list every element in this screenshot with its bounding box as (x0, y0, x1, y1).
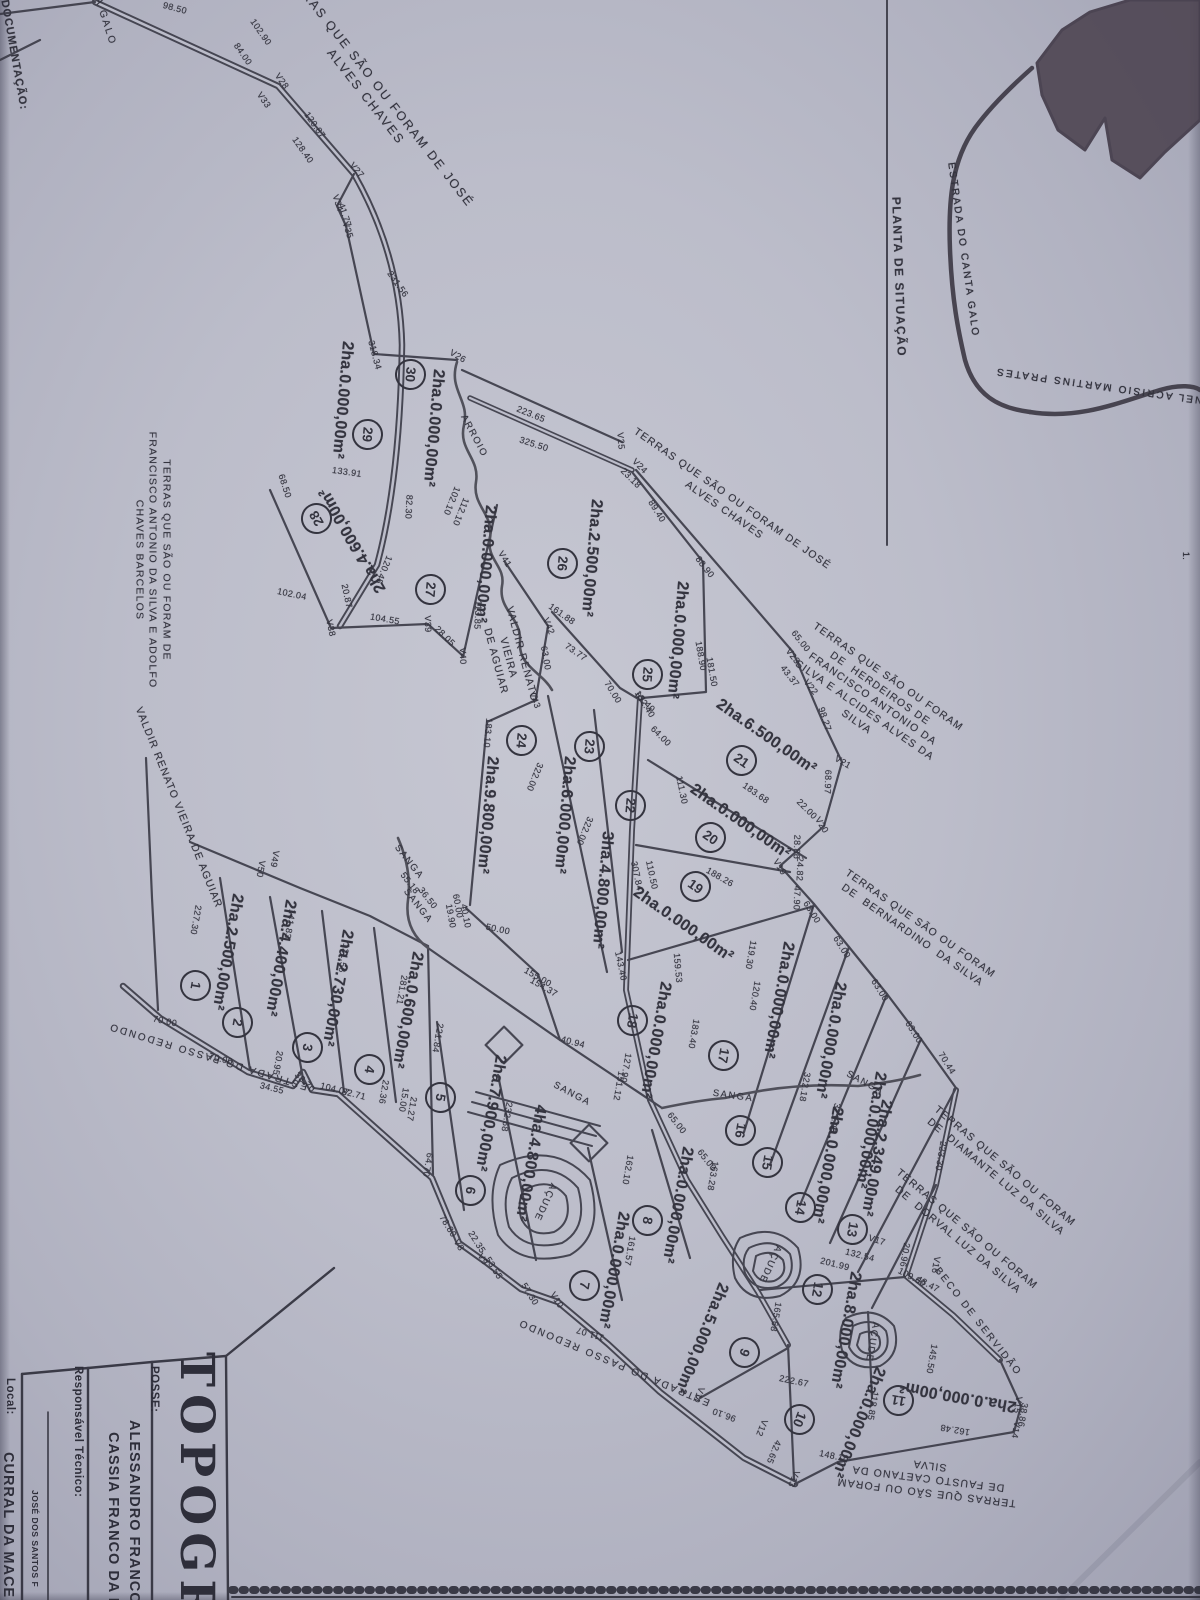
survey-mark: 50.00 (485, 922, 511, 937)
responsible-name: JOSÉ DOS SANTOS F (30, 1490, 40, 1587)
owner-label-7: TERRAS QUE SÃO OU FORAM DE FRANCISCO ANT… (132, 432, 173, 689)
survey-mark: V25 (615, 432, 626, 450)
lot-number-18: 18 (614, 1002, 650, 1038)
survey-mark: 120.87 (302, 110, 327, 140)
survey-mark: 232.68 (499, 1101, 514, 1132)
survey-mark: V49 (269, 850, 282, 869)
lot-area-24: 2ha.9.800,00m² (473, 755, 501, 874)
feature-label-3: SANGA (712, 1088, 754, 1105)
survey-mark: 63.00 (903, 1019, 924, 1045)
lot-number-15: 15 (749, 1144, 785, 1180)
lot-area-16: 2ha.0.000,00m² (811, 980, 849, 1099)
posse-name-1: ALESSANDRO FRANCO (126, 1420, 142, 1600)
survey-mark: 68.50 (276, 473, 293, 499)
survey-mark: 183.68 (741, 780, 771, 805)
lot-area-25: 2ha.0.000,00m² (663, 580, 691, 699)
survey-mark: V40 (458, 647, 469, 665)
survey-mark: 325.50 (518, 435, 550, 454)
lot-area-22: 3ha.4.800,00m² (588, 830, 616, 949)
survey-mark: 98.50 (162, 0, 188, 16)
survey-mark: 84.00 (232, 41, 254, 67)
survey-mark: 162.48 (939, 1422, 970, 1437)
survey-mark: 111.30 (674, 775, 690, 805)
survey-mark: 63.00 (801, 899, 822, 925)
survey-mark: 222.67 (778, 1373, 809, 1389)
survey-mark: 227.30 (188, 904, 203, 935)
survey-mark: 159.53 (672, 953, 685, 984)
lot-number-6: 6 (452, 1172, 488, 1208)
survey-mark: 68.97 (823, 770, 834, 795)
survey-mark: V10 (548, 1290, 566, 1310)
survey-mark: 28.05 (433, 624, 457, 648)
survey-mark: 47.90 (792, 886, 803, 911)
survey-mark: 128.40 (290, 135, 315, 165)
survey-mark: 20.95 (271, 1050, 285, 1076)
survey-mark: 145.50 (924, 1343, 939, 1374)
survey-mark: 20.87 (340, 583, 355, 609)
survey-mark: 63.00 (539, 645, 553, 671)
inset-corner-mark: 1. (1181, 552, 1191, 560)
survey-mark: V13 (786, 1469, 802, 1489)
survey-mark: 223.65 (515, 404, 547, 424)
lot-area-9: 2ha.5.000,00m² (671, 1280, 732, 1396)
lot-area-7: 2ha.0.000,00m² (594, 1210, 632, 1329)
lot-number-13: 13 (834, 1211, 870, 1247)
lot-number-30: 30 (393, 357, 427, 391)
survey-mark: V8 (452, 1237, 467, 1252)
survey-mark: 322.00 (525, 761, 545, 793)
survey-mark: 221.84 (430, 1022, 445, 1053)
lot-number-21: 21 (719, 738, 762, 781)
survey-mark: 82.30 (403, 494, 414, 519)
posse-label: POSSE: (148, 1366, 160, 1412)
lot-area-17: 2ha.0.000,00m² (759, 940, 797, 1059)
survey-mark: 64.00 (649, 724, 673, 748)
survey-mark: V21 (833, 753, 853, 770)
lot-area-29: 2ha.0.000,00m² (328, 340, 356, 459)
lot-number-9: 9 (724, 1332, 764, 1372)
survey-mark: V19 (771, 857, 789, 877)
lot-number-1: 1 (177, 967, 213, 1003)
survey-mark: 151.12 (611, 1070, 626, 1101)
survey-mark: 42.65 (765, 1439, 783, 1465)
survey-mark: 132.54 (844, 1247, 875, 1264)
survey-mark: 65.00 (666, 1110, 689, 1135)
lot-area-23: 2ha.6.000,00m² (550, 755, 578, 874)
inset-road-main: ESTRADA DO CANTA GALO (945, 162, 980, 338)
survey-mark: 88.90 (694, 554, 717, 579)
owner-label-6: TERRAS QUE SÃO OU FORAM DE FAUSTO CAETAN… (836, 1447, 1020, 1510)
survey-mark: 24.82 (795, 857, 806, 882)
lot-number-26: 26 (545, 546, 579, 580)
feature-label-8: AÇUDE (863, 1321, 881, 1363)
responsible-label: Responsável Técnico: (72, 1366, 84, 1497)
feature-label-6: AÇUDE (531, 1181, 558, 1223)
lot-number-5: 5 (422, 1079, 458, 1115)
feature-label-7: AÇUDE (756, 1243, 783, 1285)
survey-mark: 53.55 (483, 1255, 504, 1281)
survey-mark: 63.00 (831, 934, 852, 960)
lot-number-27: 27 (413, 572, 447, 606)
lot-number-22: 22 (613, 788, 647, 822)
survey-mark: V17 (867, 1233, 886, 1248)
lot-number-24: 24 (504, 723, 538, 757)
survey-mark: V26 (448, 347, 468, 364)
lot-number-10: 10 (779, 1399, 819, 1439)
lot-area-8: 2ha.0.000,00m² (658, 1145, 696, 1264)
survey-mark: V43 (527, 690, 543, 710)
survey-mark: V27 (348, 160, 367, 180)
survey-mark: 96.10 (711, 1406, 737, 1424)
scanned-survey-map-page: 12ha.2.500,00m²22ha.4.400,00m²32ha.2.730… (0, 0, 1200, 1600)
survey-mark: V28 (273, 71, 291, 91)
owner-label-0: TERRAS QUE SÃO OU FORAM DE JOSÉ ALVES CH… (267, 0, 478, 221)
lot-area-18: 2ha.0.000,00m² (636, 980, 674, 1099)
survey-mark: 22.36 (377, 1079, 391, 1105)
survey-mark: 181.50 (704, 656, 719, 687)
survey-mark: 110.50 (644, 860, 660, 891)
feature-label-2: SANGA (551, 1080, 592, 1109)
survey-mark: V42 (541, 616, 557, 636)
survey-mark: V33 (255, 90, 273, 110)
lot-area-26: 2ha.2.500,00m² (577, 498, 605, 617)
survey-mark: V38 (324, 619, 337, 638)
survey-mark: 113.85 (472, 600, 484, 630)
survey-mark: 133.91 (331, 465, 362, 479)
survey-mark: 102.90 (248, 17, 273, 47)
lot-area-4: 2ha.0.600,00m² (388, 950, 426, 1069)
feature-label-5: ARROIO (458, 413, 490, 459)
local-value: CURRAL DA MACE (0, 1452, 16, 1598)
survey-mark: V20 (813, 815, 831, 835)
survey-mark: 231.56 (385, 269, 410, 299)
survey-mark: 307.84 (629, 860, 645, 891)
lot-number-8: 8 (629, 1202, 665, 1238)
owner-label-9: VALDIR RENATO VIEIRA DE AGUIAR (131, 705, 224, 910)
survey-mark: 322.18 (797, 1071, 812, 1102)
survey-mark: 223.30 (933, 1140, 948, 1171)
lot-area-11: 2ha.0.000,00m² (898, 1377, 1017, 1415)
lot-number-7: 7 (566, 1267, 602, 1303)
survey-mark: 40.94 (560, 1034, 586, 1050)
inset-road-other: CORONEL ACRISIO MARTINS PRATES (994, 365, 1200, 410)
title-block-title: TOPOGRAFIA (169, 1352, 224, 1600)
survey-mark: 78.80 (437, 1213, 458, 1239)
survey-mark: V14 (1010, 1421, 1023, 1440)
survey-mark: 64.70 (421, 1152, 435, 1178)
survey-mark: 322.00 (575, 815, 595, 847)
posse-name-2: CASSIA FRANCO DA R (105, 1432, 121, 1600)
survey-mark: 40.10 (459, 903, 473, 929)
survey-mark: 318.34 (366, 339, 383, 371)
lot-number-12: 12 (799, 1271, 835, 1307)
survey-mark: 70.00 (602, 679, 623, 705)
lot-number-16: 16 (722, 1112, 758, 1148)
survey-mark: V41 (496, 549, 514, 569)
survey-mark: 70.44 (936, 1050, 957, 1076)
survey-mark: 162.10 (620, 1154, 635, 1185)
survey-mark: 63.00 (869, 977, 890, 1003)
lot-number-17: 17 (705, 1037, 741, 1073)
survey-mark: 32.71 (341, 1086, 367, 1102)
lot-number-25: 25 (630, 657, 664, 691)
survey-mark: 183.10 (482, 718, 495, 749)
survey-mark: 70.00 (152, 1014, 178, 1029)
lot-area-30: 2ha.0.000,00m² (419, 368, 447, 487)
survey-mark: V50 (255, 860, 268, 879)
survey-mark: 102.04 (276, 586, 307, 602)
survey-mark: 120.40 (747, 980, 762, 1011)
survey-mark: 20.96 (898, 1242, 912, 1268)
survey-mark: 165.68 (768, 1301, 783, 1332)
survey-mark: 89.40 (646, 498, 667, 524)
survey-mark: 73.77 (563, 641, 589, 663)
survey-mark: V12 (754, 1418, 770, 1438)
lot-number-29: 29 (350, 417, 384, 451)
survey-mark: 119.30 (744, 940, 759, 971)
survey-mark: 143.40 (613, 950, 629, 981)
owner-label-3: TERRAS QUE SÃO OU FORAM DE BERNARDINO DA… (834, 867, 997, 993)
survey-mark: 104.55 (369, 611, 400, 626)
survey-mark: 57.30 (519, 1281, 540, 1307)
local-label: Local: (4, 1378, 16, 1415)
survey-mark: 201.99 (819, 1256, 850, 1273)
road-name-edge-fragment: TA GALO (90, 0, 118, 47)
survey-mark: 183.40 (686, 1018, 701, 1049)
